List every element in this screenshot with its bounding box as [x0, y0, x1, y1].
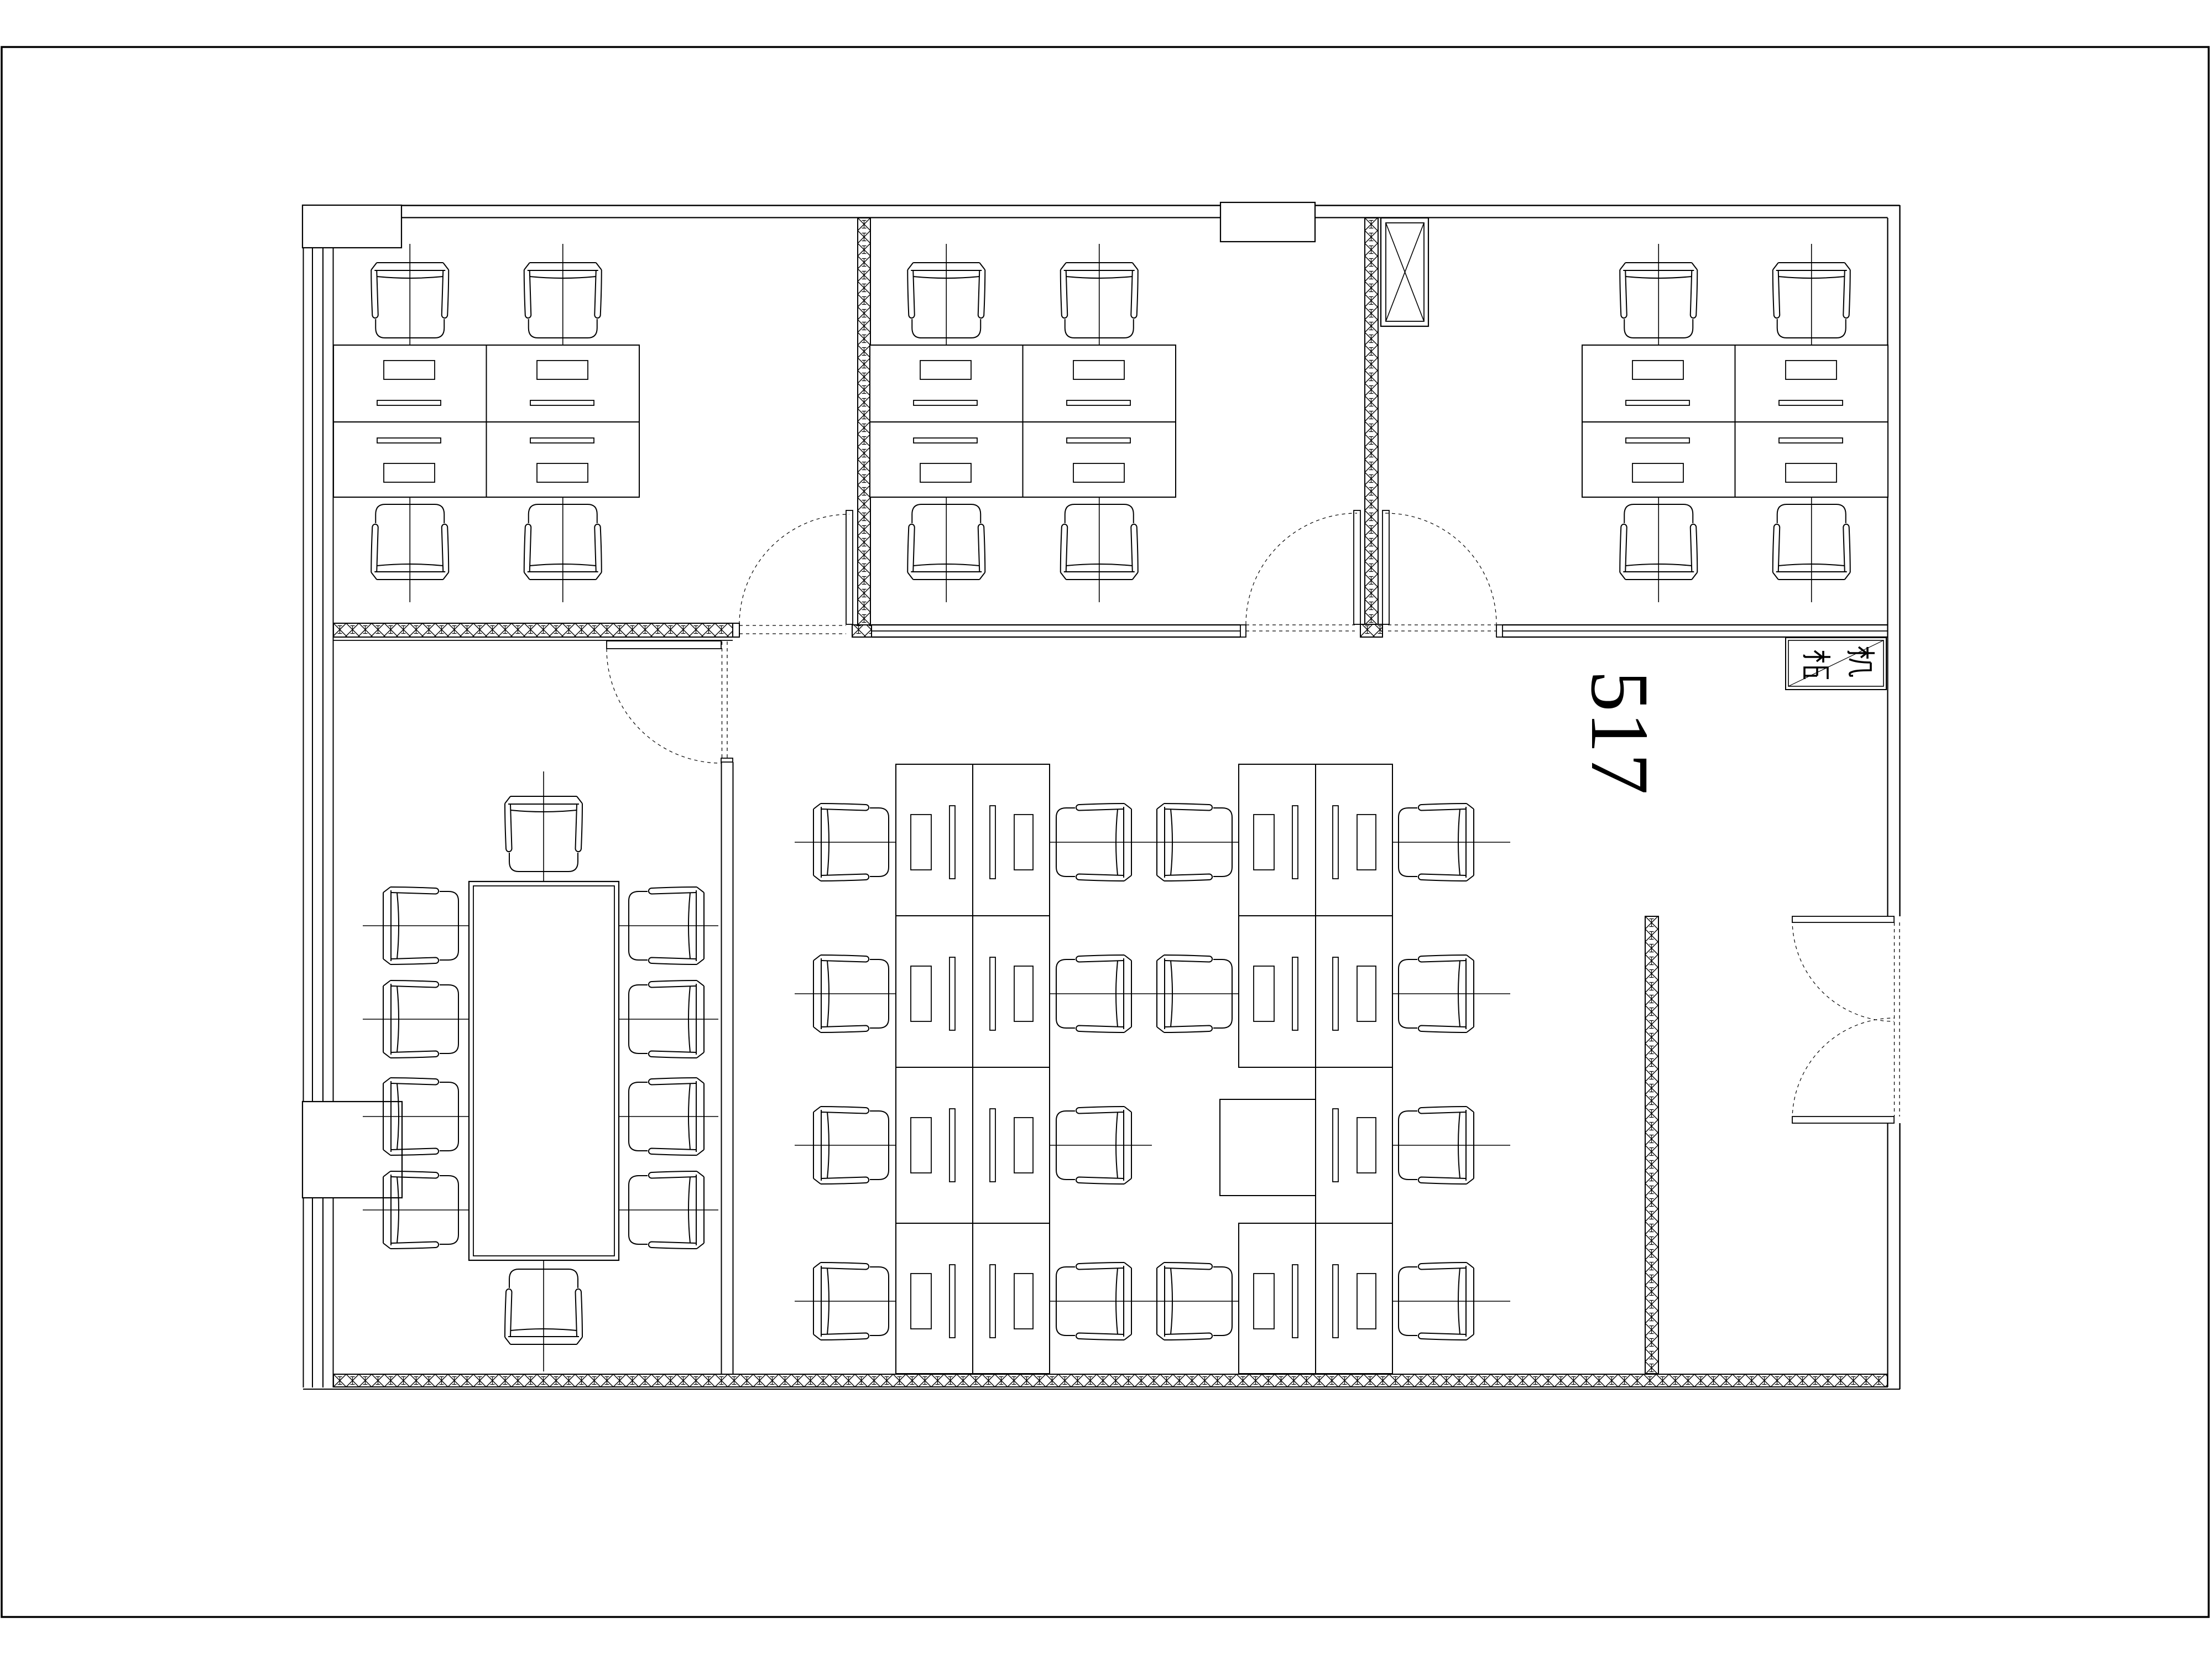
svg-text:517: 517	[1574, 670, 1666, 795]
